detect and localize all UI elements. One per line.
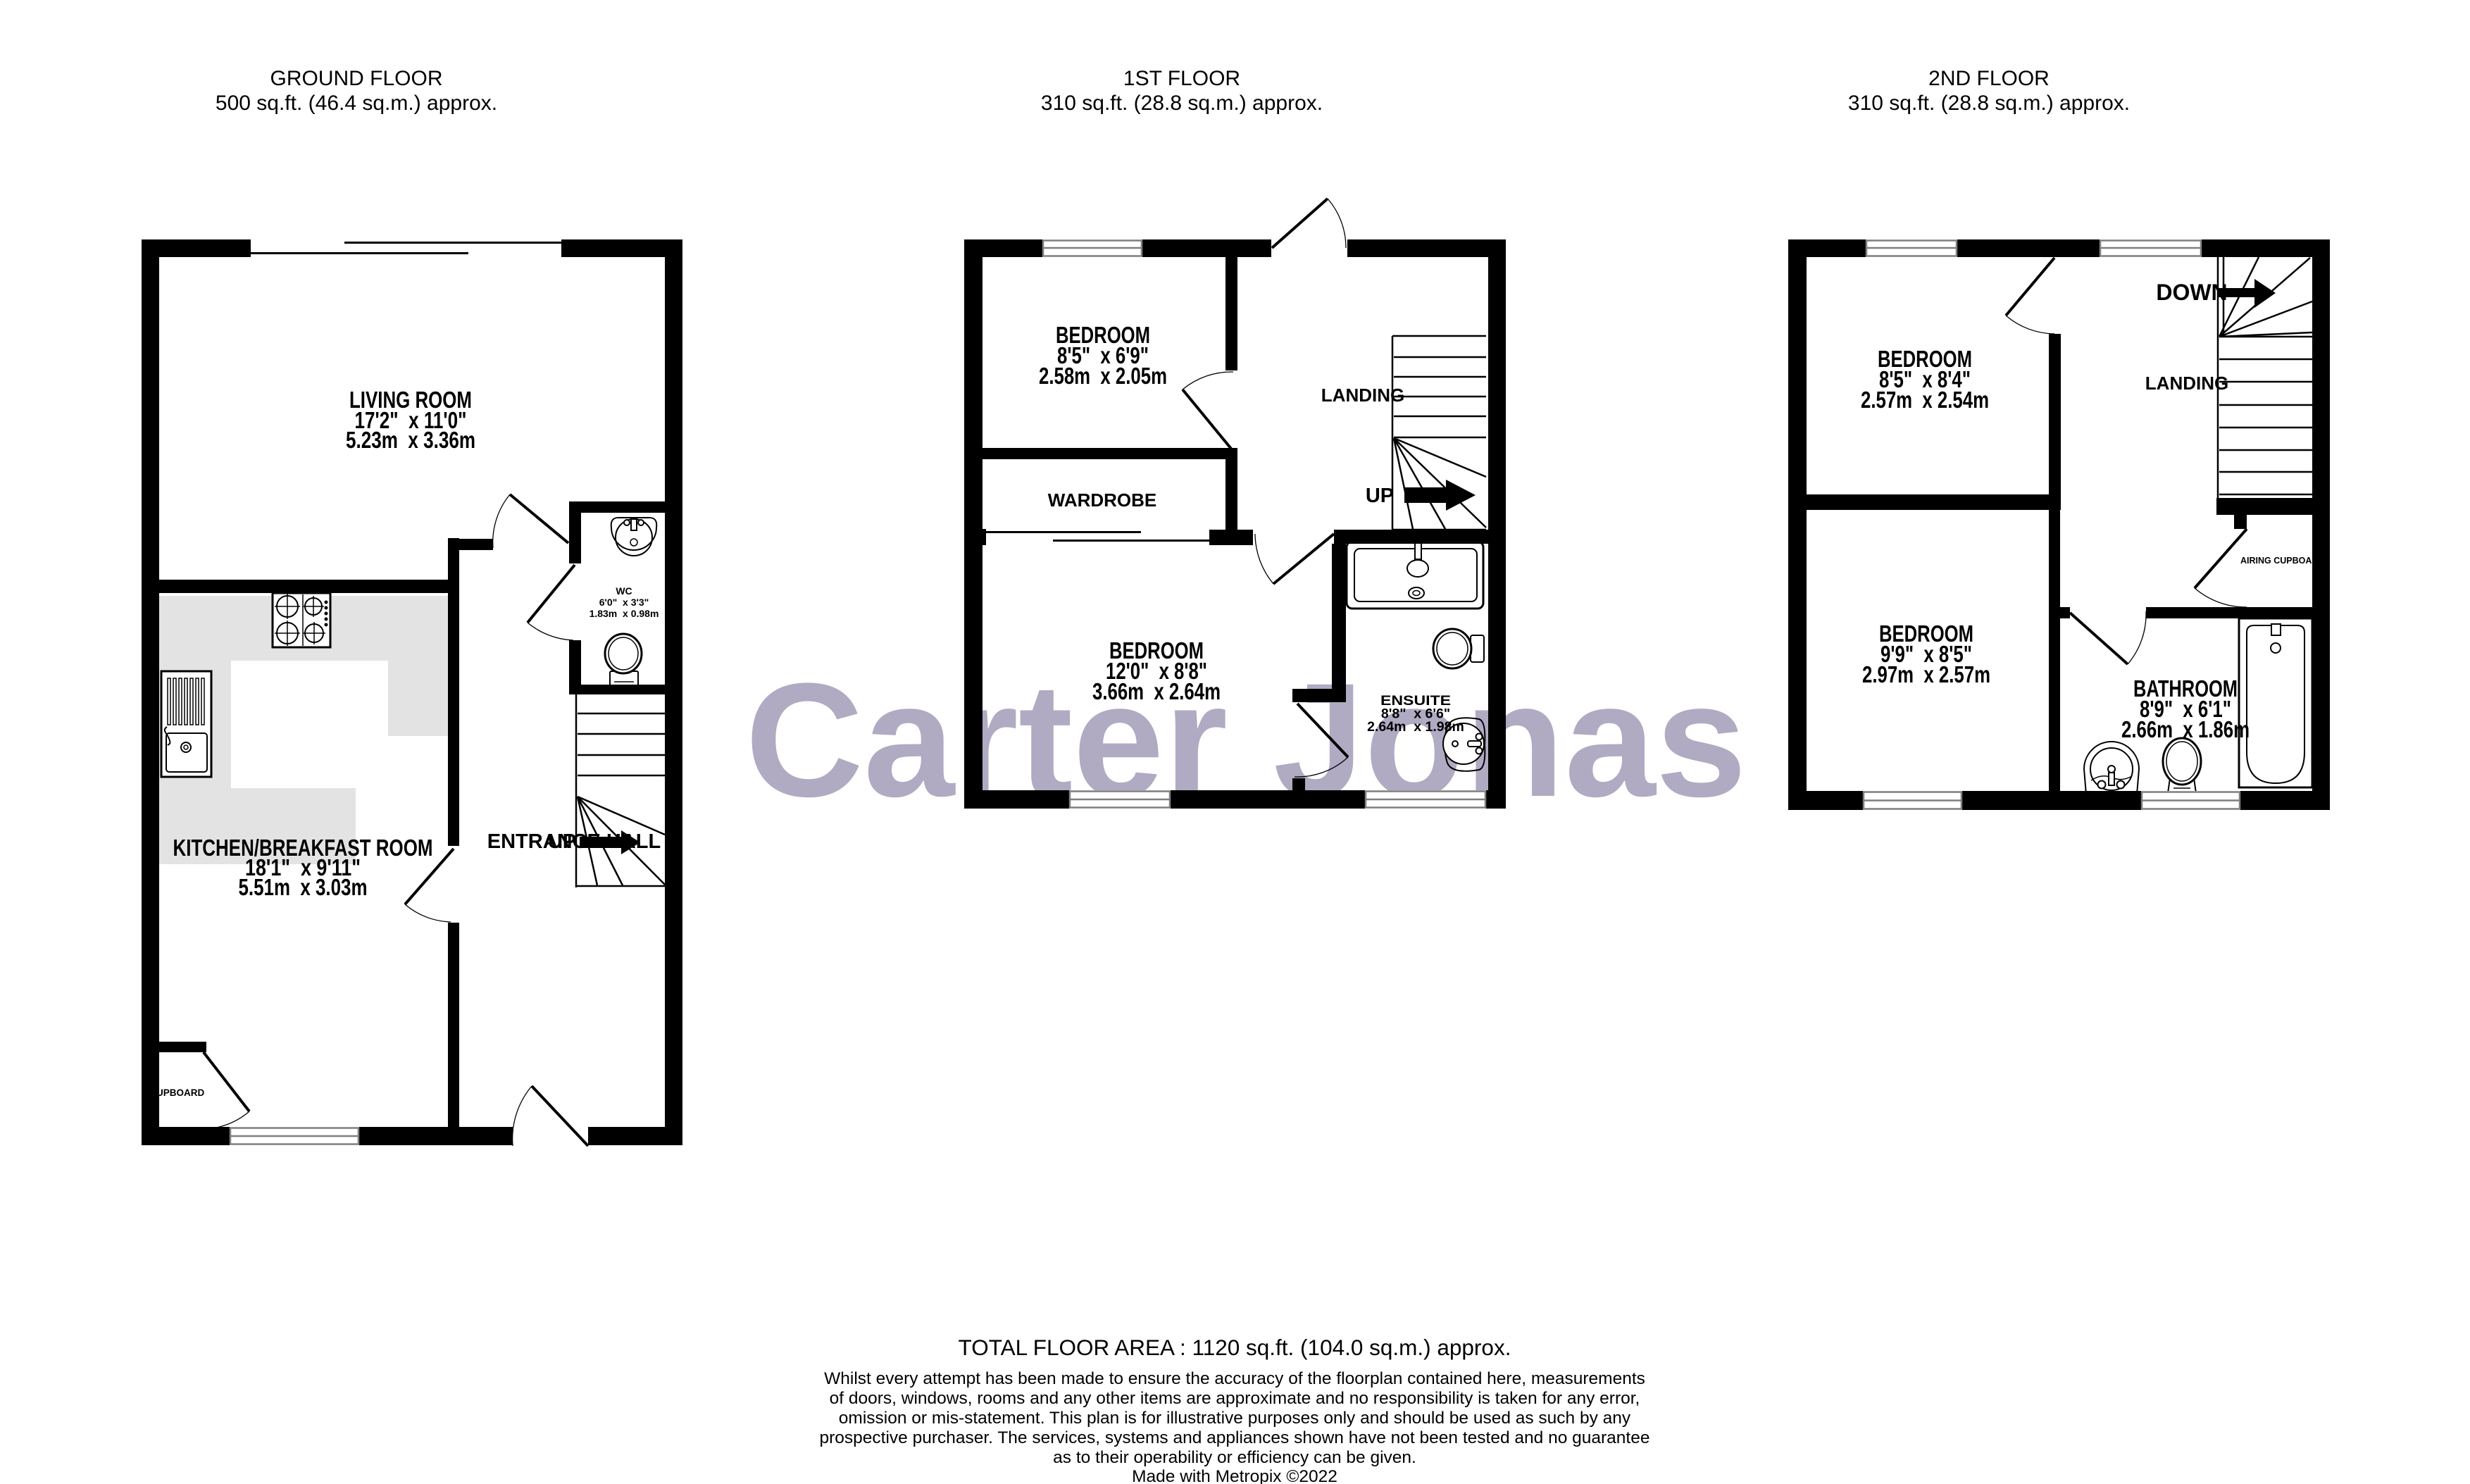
svg-text:5.23m x 3.36m: 5.23m x 3.36m bbox=[346, 427, 475, 453]
svg-text:2.66m x 1.86m: 2.66m x 1.86m bbox=[2121, 716, 2250, 742]
svg-text:Whilst every attempt has been: Whilst every attempt has been made to en… bbox=[824, 1369, 1645, 1388]
svg-text:2.58m x 2.05m: 2.58m x 2.05m bbox=[1039, 363, 1167, 389]
svg-text:omission or mis-statement. Thi: omission or mis-statement. This plan is … bbox=[839, 1409, 1631, 1428]
svg-text:WC: WC bbox=[616, 585, 632, 597]
svg-text:LANDING: LANDING bbox=[1321, 385, 1404, 406]
svg-text:5.51m x 3.03m: 5.51m x 3.03m bbox=[239, 874, 368, 900]
svg-text:prospective purchaser. The ser: prospective purchaser. The services, sys… bbox=[819, 1428, 1649, 1447]
svg-text:DOWN: DOWN bbox=[2156, 280, 2227, 305]
svg-text:GROUND FLOOR: GROUND FLOOR bbox=[270, 67, 442, 90]
svg-text:2.97m x 2.57m: 2.97m x 2.57m bbox=[1862, 661, 1990, 687]
svg-text:3.66m x 2.64m: 3.66m x 2.64m bbox=[1092, 678, 1221, 704]
svg-text:1.83m x 0.98m: 1.83m x 0.98m bbox=[590, 608, 659, 619]
svg-text:1ST FLOOR: 1ST FLOOR bbox=[1123, 67, 1240, 90]
svg-text:2.64m x 1.98m: 2.64m x 1.98m bbox=[1367, 719, 1464, 735]
svg-text:of doors, windows, rooms and a: of doors, windows, rooms and any other i… bbox=[830, 1389, 1640, 1408]
svg-text:310 sq.ft. (28.8 sq.m.) approx: 310 sq.ft. (28.8 sq.m.) approx. bbox=[1041, 92, 1323, 115]
svg-text:6'0" x 3'3": 6'0" x 3'3" bbox=[599, 597, 649, 608]
svg-text:TOTAL FLOOR AREA : 1120 sq.ft.: TOTAL FLOOR AREA : 1120 sq.ft. (104.0 sq… bbox=[959, 1335, 1511, 1360]
svg-text:500 sq.ft. (46.4 sq.m.) approx: 500 sq.ft. (46.4 sq.m.) approx. bbox=[216, 92, 497, 115]
svg-text:UP: UP bbox=[1366, 485, 1394, 507]
svg-text:Made with Metropix ©2022: Made with Metropix ©2022 bbox=[1132, 1467, 1337, 1484]
svg-text:AIRING CUPBOARD: AIRING CUPBOARD bbox=[2240, 556, 2324, 566]
svg-text:WARDROBE: WARDROBE bbox=[1048, 490, 1157, 511]
svg-text:2.57m x 2.54m: 2.57m x 2.54m bbox=[1861, 387, 1989, 413]
svg-text:UP: UP bbox=[548, 830, 576, 853]
svg-text:as to their operability or eff: as to their operability or efficiency ca… bbox=[1053, 1448, 1416, 1467]
svg-text:UPBOARD: UPBOARD bbox=[156, 1087, 205, 1098]
svg-text:310 sq.ft. (28.8 sq.m.) approx: 310 sq.ft. (28.8 sq.m.) approx. bbox=[1848, 92, 2130, 115]
svg-text:2ND FLOOR: 2ND FLOOR bbox=[1928, 67, 2050, 90]
svg-text:LANDING: LANDING bbox=[2145, 373, 2228, 394]
